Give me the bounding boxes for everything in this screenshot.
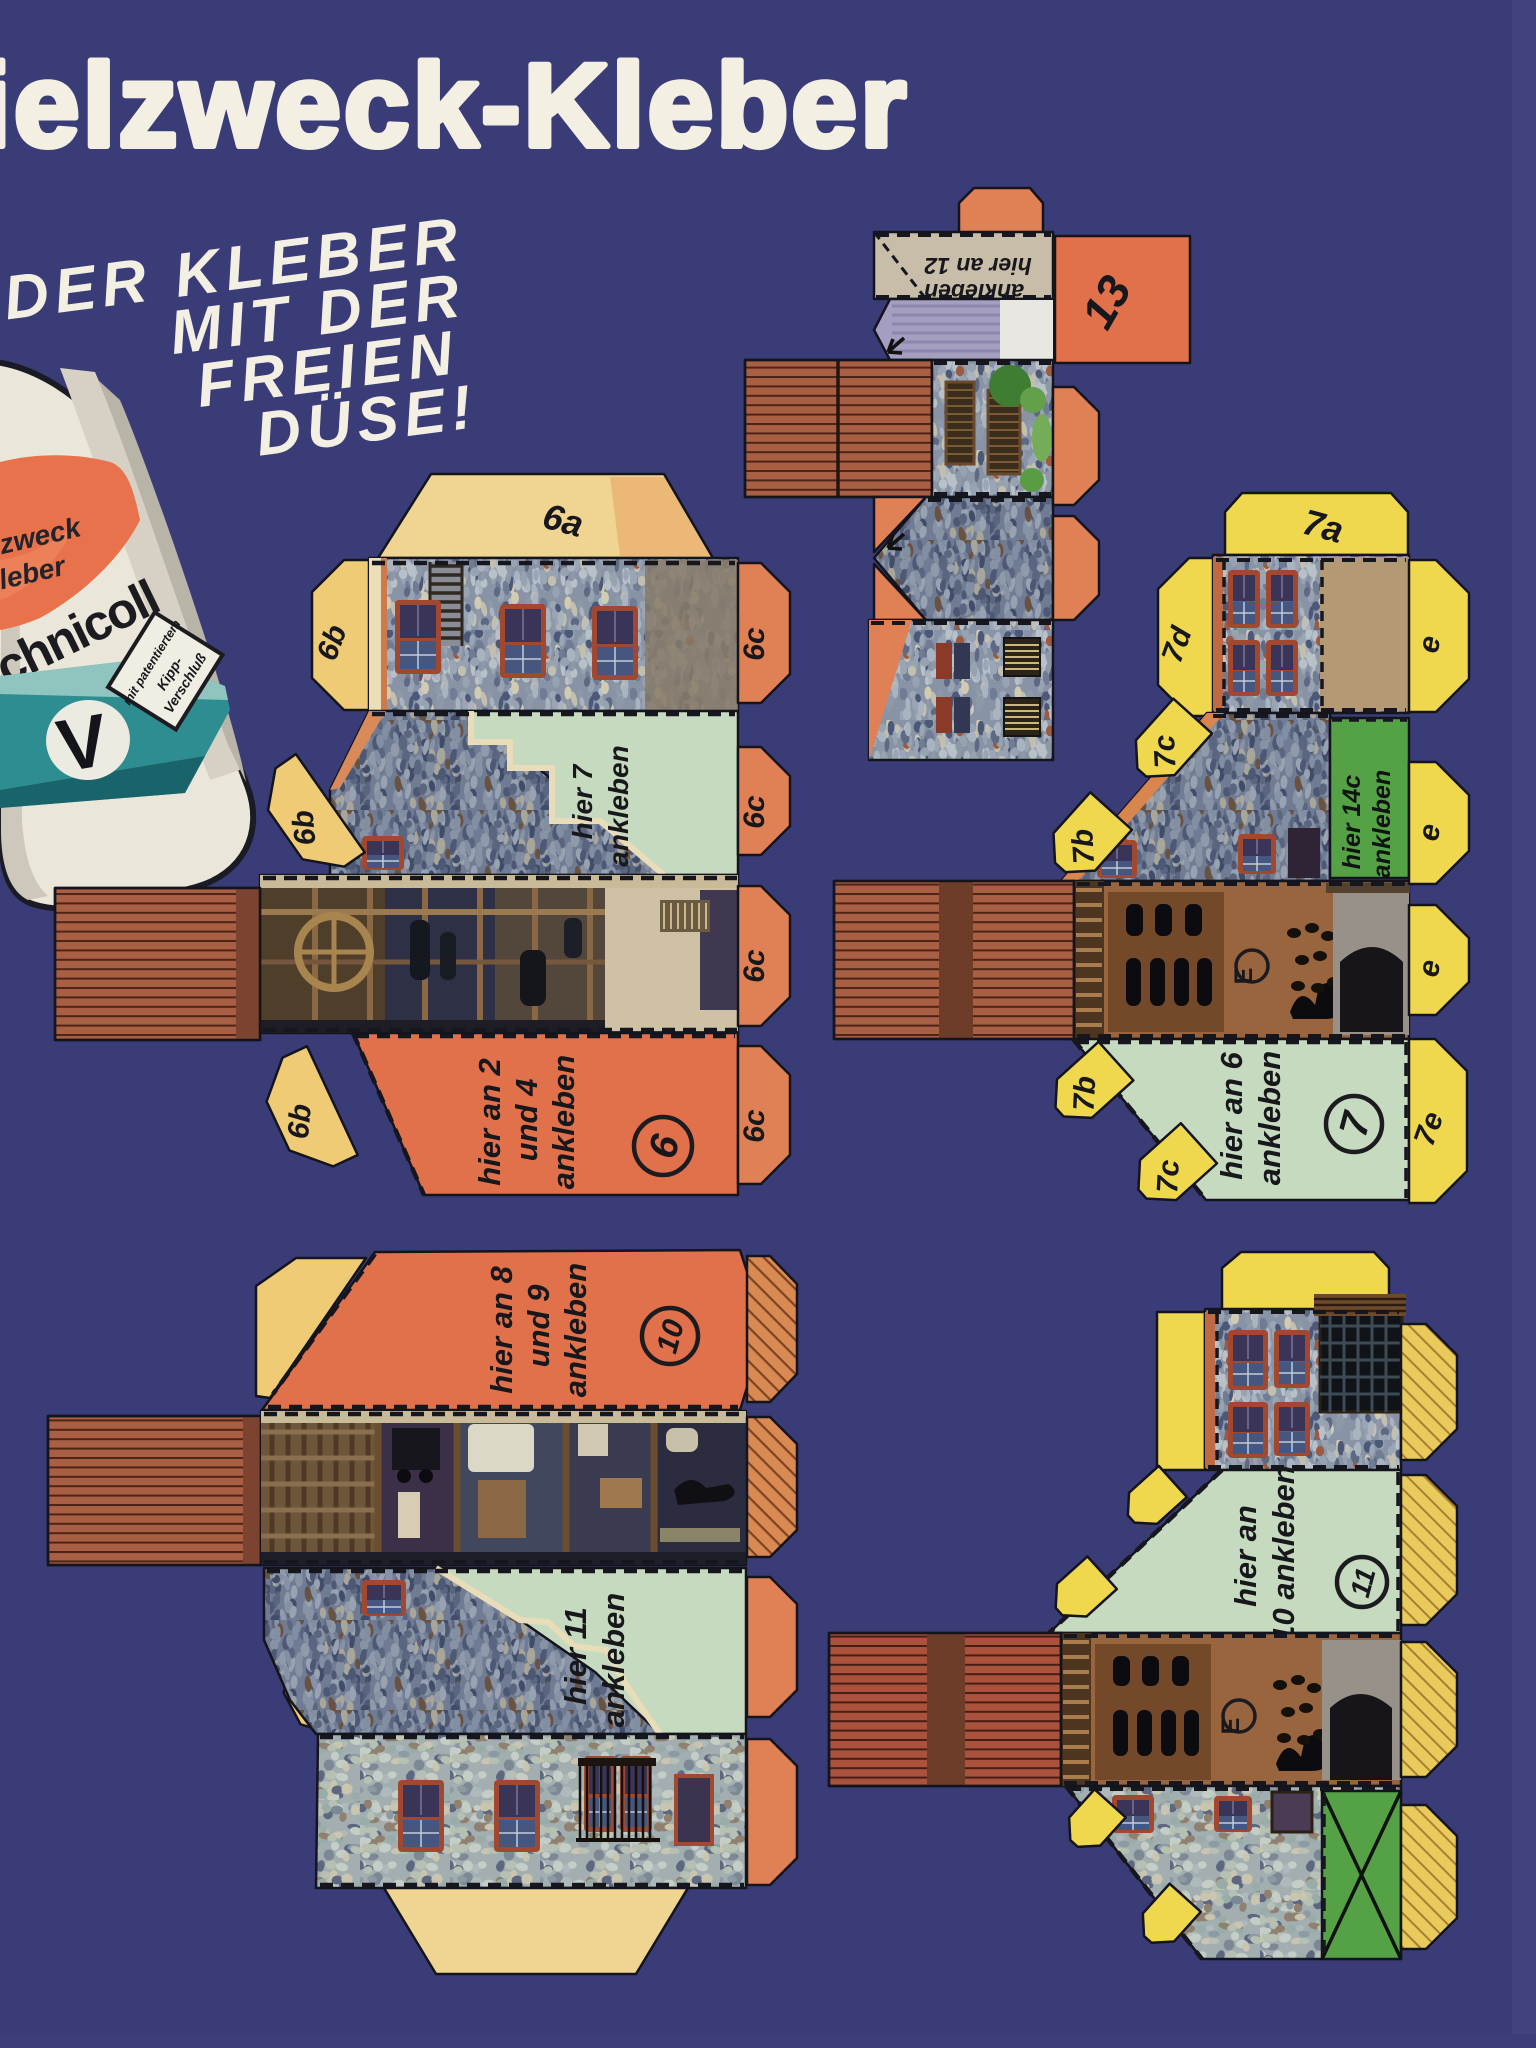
svg-text:hier an: hier an — [1228, 1505, 1263, 1607]
svg-text:6c: 6c — [738, 627, 771, 661]
svg-text:und 9: und 9 — [521, 1284, 556, 1367]
svg-text:hier 14c: hier 14c — [1338, 775, 1366, 870]
svg-text:7c: 7c — [1148, 734, 1183, 769]
svg-text:ankleben: ankleben — [1252, 1051, 1287, 1185]
svg-text:ankleben: ankleben — [558, 1263, 593, 1397]
svg-text:E: E — [1230, 968, 1258, 985]
svg-text:ielzweck-Kleber: ielzweck-Kleber — [0, 40, 905, 172]
svg-text:7b: 7b — [1068, 1075, 1103, 1112]
svg-text:ankleben: ankleben — [603, 745, 634, 866]
svg-text:7b: 7b — [1066, 828, 1101, 865]
svg-text:und 4: und 4 — [509, 1079, 544, 1162]
svg-text:hier an 2: hier an 2 — [472, 1058, 507, 1186]
svg-text:7c: 7c — [1151, 1159, 1186, 1194]
svg-text:6b: 6b — [287, 809, 323, 847]
svg-text:6b: 6b — [282, 1103, 318, 1141]
svg-text:hier an 8: hier an 8 — [484, 1265, 519, 1393]
svg-text:6c: 6c — [738, 1109, 771, 1143]
svg-text:ankleben: ankleben — [1368, 770, 1396, 878]
svg-text:hier an 12: hier an 12 — [924, 253, 1032, 279]
svg-text:ankleben: ankleben — [596, 1593, 631, 1727]
svg-text:10 ankleben: 10 ankleben — [1266, 1465, 1301, 1642]
svg-text:6c: 6c — [738, 795, 771, 829]
svg-text:hier an 6: hier an 6 — [1214, 1051, 1249, 1179]
svg-text:ankleben: ankleben — [546, 1055, 581, 1189]
svg-text:hier 7: hier 7 — [567, 763, 598, 839]
svg-text:6c: 6c — [738, 949, 771, 983]
svg-text:hier 11: hier 11 — [558, 1607, 593, 1705]
svg-text:E: E — [1217, 1718, 1245, 1735]
